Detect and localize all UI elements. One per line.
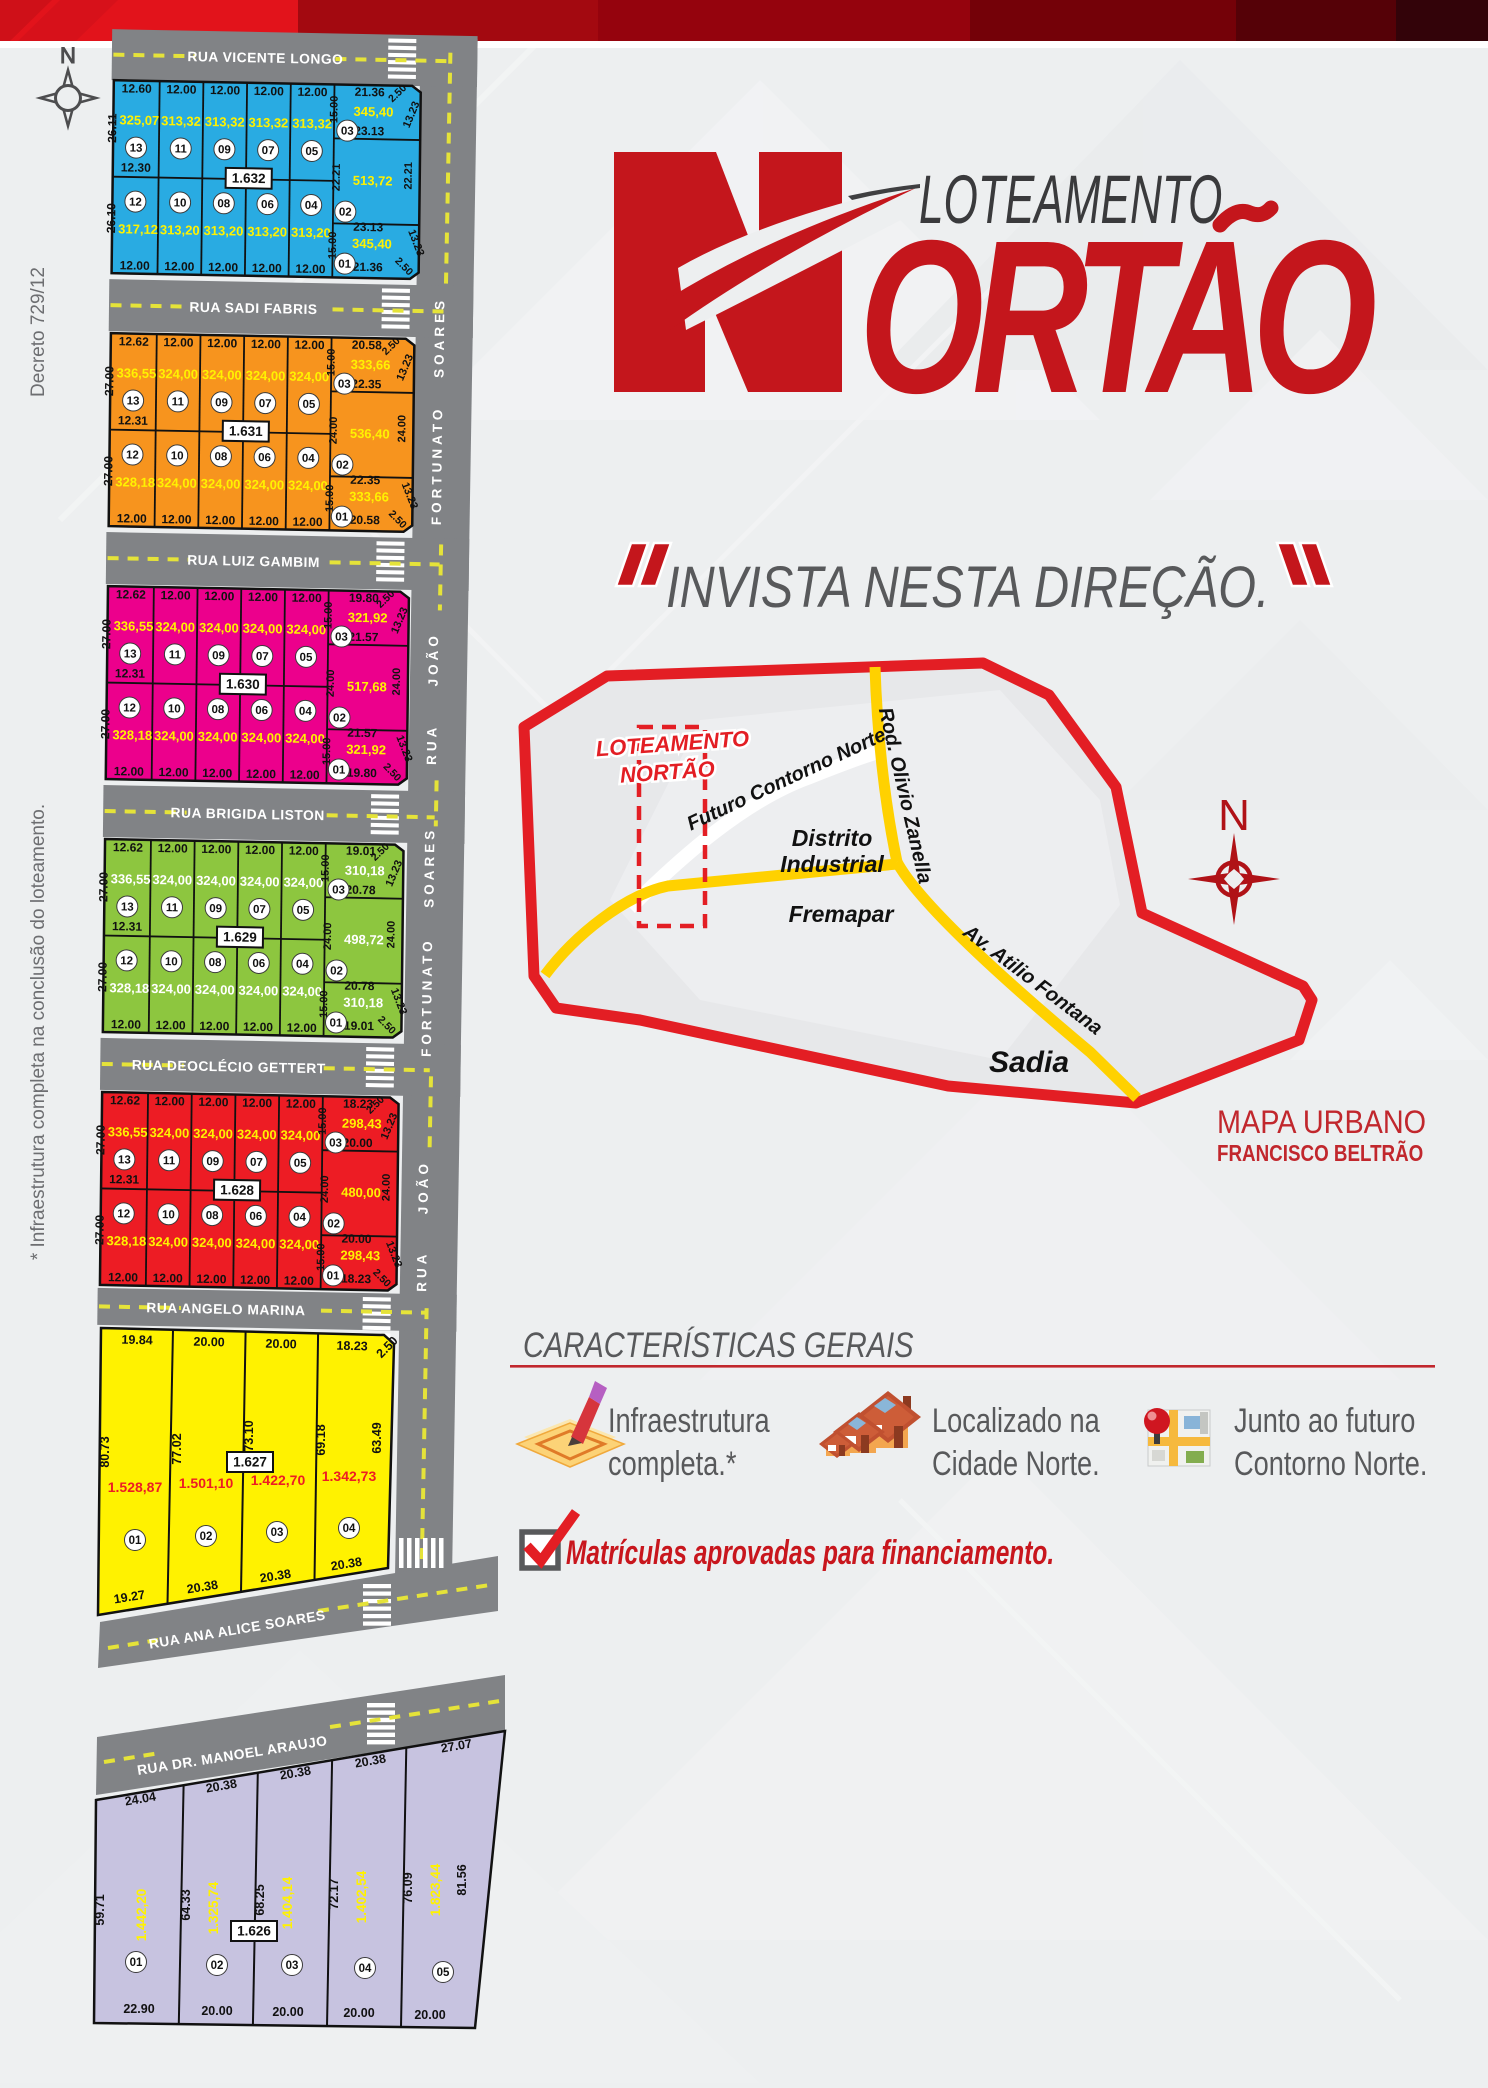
svg-text:324,00: 324,00 bbox=[282, 983, 322, 999]
svg-text:24.00: 24.00 bbox=[391, 668, 403, 696]
svg-text:12.00: 12.00 bbox=[158, 841, 189, 856]
svg-text:324,00: 324,00 bbox=[283, 874, 323, 890]
svg-text:12.00: 12.00 bbox=[166, 82, 197, 97]
svg-text:12.31: 12.31 bbox=[109, 1172, 140, 1187]
svg-text:1.402,54: 1.402,54 bbox=[354, 1870, 369, 1923]
svg-text:20.58: 20.58 bbox=[352, 338, 383, 353]
svg-text:298,43: 298,43 bbox=[340, 1248, 380, 1264]
svg-text:01: 01 bbox=[129, 1535, 142, 1547]
svg-text:12.00: 12.00 bbox=[196, 1272, 227, 1287]
svg-text:02: 02 bbox=[339, 207, 352, 219]
svg-text:02: 02 bbox=[330, 965, 343, 977]
svg-text:24.00: 24.00 bbox=[328, 417, 340, 445]
svg-text:12.60: 12.60 bbox=[122, 81, 153, 96]
svg-text:15.00: 15.00 bbox=[318, 990, 330, 1018]
svg-text:02: 02 bbox=[211, 1960, 224, 1972]
svg-text:324,00: 324,00 bbox=[286, 622, 326, 638]
svg-text:324,00: 324,00 bbox=[289, 369, 329, 385]
svg-text:12.62: 12.62 bbox=[110, 1093, 141, 1108]
svg-text:RUA LUIZ GAMBIM: RUA LUIZ GAMBIM bbox=[187, 553, 320, 571]
svg-text:03: 03 bbox=[338, 378, 351, 390]
svg-text:07: 07 bbox=[250, 1157, 263, 1169]
svg-text:336,55: 336,55 bbox=[114, 618, 154, 634]
svg-text:10: 10 bbox=[165, 956, 178, 968]
svg-text:12.00: 12.00 bbox=[111, 1017, 142, 1032]
svg-text:324,00: 324,00 bbox=[279, 1236, 319, 1252]
svg-text:09: 09 bbox=[209, 903, 222, 915]
svg-text:07: 07 bbox=[253, 904, 266, 916]
svg-text:324,00: 324,00 bbox=[236, 1236, 276, 1252]
svg-text:1.629: 1.629 bbox=[223, 929, 257, 945]
svg-text:03: 03 bbox=[271, 1527, 284, 1539]
svg-text:19.80: 19.80 bbox=[347, 766, 378, 781]
svg-text:20.00: 20.00 bbox=[193, 1335, 225, 1350]
svg-text:328,18: 328,18 bbox=[109, 980, 149, 996]
svg-text:12.00: 12.00 bbox=[160, 588, 191, 603]
svg-text:313,32: 313,32 bbox=[248, 115, 288, 131]
svg-text:01: 01 bbox=[330, 1017, 344, 1029]
svg-text:12.00: 12.00 bbox=[289, 844, 320, 859]
svg-text:completa.*: completa.* bbox=[608, 1444, 736, 1483]
svg-text:13: 13 bbox=[124, 648, 137, 660]
svg-text:20.00: 20.00 bbox=[201, 2004, 232, 2018]
svg-text:12: 12 bbox=[126, 449, 139, 461]
svg-text:324,00: 324,00 bbox=[151, 981, 191, 997]
svg-text:20.00: 20.00 bbox=[272, 2005, 303, 2019]
svg-text:324,00: 324,00 bbox=[201, 476, 241, 492]
svg-text:77.02: 77.02 bbox=[170, 1433, 184, 1464]
svg-text:324,00: 324,00 bbox=[152, 872, 192, 888]
svg-text:15.00: 15.00 bbox=[323, 601, 335, 629]
svg-text:03: 03 bbox=[335, 631, 348, 643]
svg-text:20.78: 20.78 bbox=[344, 979, 375, 994]
svg-text:21.36: 21.36 bbox=[355, 85, 386, 100]
svg-text:1.823,44: 1.823,44 bbox=[428, 1863, 443, 1916]
svg-text:73.10: 73.10 bbox=[242, 1420, 256, 1451]
svg-text:498,72: 498,72 bbox=[344, 932, 384, 948]
svg-text:310,18: 310,18 bbox=[343, 995, 383, 1011]
svg-text:1.626: 1.626 bbox=[237, 1924, 271, 1939]
svg-text:1.404,14: 1.404,14 bbox=[280, 1876, 295, 1929]
svg-text:13: 13 bbox=[118, 1154, 131, 1166]
svg-text:11: 11 bbox=[175, 143, 188, 155]
svg-text:03: 03 bbox=[329, 1137, 342, 1149]
svg-text:12.00: 12.00 bbox=[242, 1096, 273, 1111]
svg-text:310,18: 310,18 bbox=[345, 863, 385, 879]
svg-text:08: 08 bbox=[209, 957, 223, 969]
svg-text:328,18: 328,18 bbox=[106, 1233, 146, 1249]
svg-text:324,00: 324,00 bbox=[196, 873, 236, 889]
svg-text:15.00: 15.00 bbox=[315, 1243, 327, 1271]
svg-text:12.00: 12.00 bbox=[199, 1019, 230, 1034]
svg-text:12.00: 12.00 bbox=[208, 260, 239, 275]
svg-text:20.78: 20.78 bbox=[345, 883, 376, 898]
svg-text:12.00: 12.00 bbox=[114, 764, 145, 779]
svg-text:1.442,20: 1.442,20 bbox=[134, 1889, 149, 1942]
svg-text:Sadia: Sadia bbox=[989, 1046, 1069, 1079]
svg-text:12.00: 12.00 bbox=[295, 262, 326, 277]
svg-text:RUA BRIGIDA LISTON: RUA BRIGIDA LISTON bbox=[171, 805, 325, 823]
svg-text:09: 09 bbox=[212, 650, 225, 662]
svg-text:27.00: 27.00 bbox=[101, 456, 115, 487]
svg-text:FORTUNATO: FORTUNATO bbox=[419, 937, 435, 1057]
svg-text:22.35: 22.35 bbox=[350, 473, 381, 488]
svg-text:298,43: 298,43 bbox=[342, 1116, 382, 1132]
svg-text:480,00: 480,00 bbox=[341, 1185, 381, 1201]
svg-text:05: 05 bbox=[300, 652, 314, 664]
svg-text:313,32: 313,32 bbox=[205, 114, 245, 130]
svg-text:12.00: 12.00 bbox=[117, 511, 148, 526]
svg-text:05: 05 bbox=[305, 146, 319, 158]
svg-text:12.00: 12.00 bbox=[198, 1095, 229, 1110]
svg-text:20.00: 20.00 bbox=[414, 2008, 445, 2022]
svg-text:05: 05 bbox=[437, 1967, 450, 1979]
svg-text:05: 05 bbox=[294, 1158, 308, 1170]
svg-text:12: 12 bbox=[120, 955, 133, 967]
svg-text:324,00: 324,00 bbox=[199, 620, 239, 636]
svg-text:12.00: 12.00 bbox=[164, 259, 195, 274]
svg-text:63.49: 63.49 bbox=[370, 1422, 384, 1453]
svg-text:15.00: 15.00 bbox=[324, 484, 336, 512]
svg-text:06: 06 bbox=[258, 452, 271, 464]
svg-text:27.00: 27.00 bbox=[98, 709, 112, 740]
svg-text:07: 07 bbox=[262, 145, 275, 157]
svg-text:21.57: 21.57 bbox=[348, 630, 379, 645]
svg-text:22.21: 22.21 bbox=[403, 162, 415, 190]
svg-text:27.00: 27.00 bbox=[92, 1214, 106, 1245]
svg-text:536,40: 536,40 bbox=[350, 426, 390, 442]
svg-text:24.00: 24.00 bbox=[322, 922, 334, 950]
svg-text:13: 13 bbox=[121, 901, 134, 913]
svg-text:1.325,74: 1.325,74 bbox=[206, 1881, 221, 1934]
svg-text:324,00: 324,00 bbox=[192, 1235, 232, 1251]
svg-text:27.00: 27.00 bbox=[95, 961, 109, 992]
svg-text:324,00: 324,00 bbox=[285, 730, 325, 746]
svg-text:12.31: 12.31 bbox=[112, 919, 143, 934]
svg-text:1.627: 1.627 bbox=[233, 1455, 267, 1470]
svg-text:19.84: 19.84 bbox=[121, 1333, 153, 1348]
svg-text:11: 11 bbox=[172, 396, 185, 408]
svg-text:1.631: 1.631 bbox=[229, 423, 263, 439]
svg-text:19.01: 19.01 bbox=[344, 1019, 375, 1034]
svg-text:59.71: 59.71 bbox=[93, 1894, 107, 1925]
svg-text:02: 02 bbox=[333, 712, 346, 724]
svg-text:12.00: 12.00 bbox=[108, 1270, 139, 1285]
svg-text:18.23: 18.23 bbox=[336, 1339, 368, 1354]
svg-text:04: 04 bbox=[293, 1212, 307, 1224]
svg-text:324,00: 324,00 bbox=[198, 729, 238, 745]
svg-text:01: 01 bbox=[338, 258, 352, 270]
svg-text:ORTAO: ORTAO bbox=[859, 195, 1375, 439]
svg-text:12.00: 12.00 bbox=[292, 515, 323, 530]
svg-text:12.00: 12.00 bbox=[246, 767, 277, 782]
svg-text:INVISTA NESTA DIREÇÃO.: INVISTA NESTA DIREÇÃO. bbox=[666, 556, 1270, 620]
svg-text:12.00: 12.00 bbox=[207, 336, 238, 351]
svg-text:22.21: 22.21 bbox=[331, 164, 343, 192]
svg-text:1.422,70: 1.422,70 bbox=[251, 1472, 306, 1488]
svg-text:324,00: 324,00 bbox=[243, 621, 283, 637]
svg-text:12.00: 12.00 bbox=[202, 766, 233, 781]
svg-text:324,00: 324,00 bbox=[246, 368, 286, 384]
svg-text:JOÃO: JOÃO bbox=[426, 632, 442, 687]
svg-text:11: 11 bbox=[166, 902, 179, 914]
svg-text:02: 02 bbox=[336, 459, 349, 471]
svg-text:12.00: 12.00 bbox=[286, 1096, 317, 1111]
svg-text:23.13: 23.13 bbox=[354, 124, 385, 139]
svg-text:07: 07 bbox=[259, 398, 272, 410]
svg-text:324,00: 324,00 bbox=[281, 1127, 321, 1143]
svg-text:13: 13 bbox=[130, 142, 143, 154]
svg-text:12.00: 12.00 bbox=[245, 843, 276, 858]
svg-text:324,00: 324,00 bbox=[148, 1234, 188, 1250]
svg-text:20.00: 20.00 bbox=[343, 2006, 374, 2020]
svg-text:324,00: 324,00 bbox=[288, 478, 328, 494]
svg-text:24.00: 24.00 bbox=[385, 921, 397, 949]
svg-text:324,00: 324,00 bbox=[195, 982, 235, 998]
svg-text:Cidade Norte.: Cidade Norte. bbox=[932, 1444, 1100, 1483]
svg-text:SOARES: SOARES bbox=[432, 297, 448, 378]
svg-text:MAPA URBANO: MAPA URBANO bbox=[1217, 1105, 1426, 1141]
svg-text:12.00: 12.00 bbox=[204, 589, 235, 604]
svg-text:06: 06 bbox=[249, 1211, 262, 1223]
svg-text:321,92: 321,92 bbox=[346, 742, 386, 758]
svg-text:12.00: 12.00 bbox=[120, 258, 151, 273]
svg-text:09: 09 bbox=[218, 144, 231, 156]
svg-text:12.31: 12.31 bbox=[115, 666, 146, 681]
svg-text:336,55: 336,55 bbox=[111, 871, 151, 887]
svg-text:04: 04 bbox=[296, 959, 310, 971]
svg-text:08: 08 bbox=[211, 704, 225, 716]
svg-text:Infraestrutura: Infraestrutura bbox=[608, 1401, 770, 1440]
svg-text:23.13: 23.13 bbox=[353, 220, 384, 235]
svg-text:20.58: 20.58 bbox=[350, 513, 381, 528]
svg-text:76.09: 76.09 bbox=[401, 1872, 415, 1903]
svg-text:324,00: 324,00 bbox=[193, 1126, 233, 1142]
svg-text:01: 01 bbox=[130, 1957, 143, 1969]
svg-text:04: 04 bbox=[302, 453, 316, 465]
svg-text:328,18: 328,18 bbox=[112, 727, 152, 743]
svg-text:06: 06 bbox=[252, 958, 265, 970]
svg-text:324,00: 324,00 bbox=[240, 874, 280, 890]
svg-text:RUA VICENTE LONGO: RUA VICENTE LONGO bbox=[187, 49, 343, 67]
svg-text:27.00: 27.00 bbox=[99, 619, 113, 650]
svg-text:336,55: 336,55 bbox=[108, 1124, 148, 1140]
svg-text:Distrito: Distrito bbox=[792, 825, 873, 851]
svg-text:04: 04 bbox=[305, 200, 319, 212]
svg-text:02: 02 bbox=[200, 1531, 213, 1543]
svg-text:05: 05 bbox=[297, 905, 311, 917]
svg-text:324,00: 324,00 bbox=[157, 475, 197, 491]
svg-text:Localizado na: Localizado na bbox=[932, 1401, 1101, 1440]
svg-text:Fremapar: Fremapar bbox=[789, 901, 895, 927]
svg-text:336,55: 336,55 bbox=[116, 365, 156, 381]
svg-text:313,20: 313,20 bbox=[291, 225, 331, 241]
svg-text:N: N bbox=[60, 43, 76, 68]
svg-text:08: 08 bbox=[214, 451, 228, 463]
svg-text:12.00: 12.00 bbox=[254, 84, 285, 99]
svg-text:517,68: 517,68 bbox=[347, 679, 387, 695]
svg-text:80.73: 80.73 bbox=[98, 1436, 112, 1467]
svg-text:11: 11 bbox=[163, 1155, 176, 1167]
svg-text:324,00: 324,00 bbox=[149, 1125, 189, 1141]
svg-text:10: 10 bbox=[174, 197, 187, 209]
svg-text:11: 11 bbox=[169, 649, 182, 661]
svg-text:13: 13 bbox=[127, 395, 140, 407]
svg-text:1.632: 1.632 bbox=[232, 170, 266, 186]
svg-text:1.628: 1.628 bbox=[220, 1182, 254, 1198]
svg-text:313,32: 313,32 bbox=[161, 113, 201, 129]
svg-text:313,20: 313,20 bbox=[247, 224, 287, 240]
svg-text:04: 04 bbox=[359, 1963, 372, 1975]
svg-text:1.528,87: 1.528,87 bbox=[108, 1479, 163, 1495]
svg-text:01: 01 bbox=[332, 764, 346, 776]
svg-text:12.00: 12.00 bbox=[205, 513, 236, 528]
svg-text:324,00: 324,00 bbox=[238, 983, 278, 999]
svg-text:12.00: 12.00 bbox=[251, 337, 282, 352]
svg-text:12.00: 12.00 bbox=[287, 1021, 318, 1036]
svg-text:12.62: 12.62 bbox=[113, 840, 144, 855]
svg-text:15.00: 15.00 bbox=[321, 737, 333, 765]
svg-text:12.62: 12.62 bbox=[116, 587, 147, 602]
svg-text:24.00: 24.00 bbox=[325, 669, 337, 697]
svg-text:FRANCISCO BELTRÃO: FRANCISCO BELTRÃO bbox=[1217, 1139, 1423, 1167]
svg-text:21.36: 21.36 bbox=[353, 260, 384, 275]
svg-text:24.00: 24.00 bbox=[380, 1174, 392, 1202]
svg-text:RUA ANGELO MARINA: RUA ANGELO MARINA bbox=[146, 1300, 305, 1318]
svg-text:513,72: 513,72 bbox=[353, 173, 393, 189]
svg-text:12.00: 12.00 bbox=[240, 1273, 271, 1288]
svg-text:03: 03 bbox=[286, 1960, 299, 1972]
svg-text:27.00: 27.00 bbox=[96, 872, 110, 903]
svg-text:24.00: 24.00 bbox=[396, 415, 408, 443]
svg-text:20.00: 20.00 bbox=[265, 1337, 297, 1352]
svg-text:18.23: 18.23 bbox=[341, 1272, 372, 1287]
svg-text:12.00: 12.00 bbox=[243, 1020, 274, 1035]
svg-text:345,40: 345,40 bbox=[352, 236, 392, 252]
svg-text:04: 04 bbox=[343, 1523, 356, 1535]
svg-text:03: 03 bbox=[332, 884, 345, 896]
svg-text:06: 06 bbox=[261, 199, 274, 211]
svg-text:RUA SADI FABRIS: RUA SADI FABRIS bbox=[189, 300, 317, 317]
svg-text:12.30: 12.30 bbox=[121, 160, 152, 175]
svg-text:12.00: 12.00 bbox=[161, 512, 192, 527]
svg-text:12.00: 12.00 bbox=[248, 590, 279, 605]
svg-text:69.18: 69.18 bbox=[314, 1424, 328, 1455]
svg-text:CARACTERÍSTICAS GERAIS: CARACTERÍSTICAS GERAIS bbox=[523, 1325, 914, 1364]
svg-text:325,07: 325,07 bbox=[119, 112, 159, 128]
svg-text:72.17: 72.17 bbox=[327, 1878, 341, 1909]
svg-text:12.00: 12.00 bbox=[252, 261, 283, 276]
svg-text:324,00: 324,00 bbox=[155, 619, 195, 635]
svg-text:324,00: 324,00 bbox=[158, 366, 198, 382]
svg-text:15.00: 15.00 bbox=[325, 348, 337, 376]
svg-text:20.00: 20.00 bbox=[343, 1136, 374, 1151]
svg-text:Contorno Norte.: Contorno Norte. bbox=[1234, 1444, 1427, 1483]
svg-text:09: 09 bbox=[215, 397, 228, 409]
svg-text:12.00: 12.00 bbox=[292, 591, 323, 606]
svg-text:12.00: 12.00 bbox=[290, 768, 321, 783]
svg-text:81.56: 81.56 bbox=[455, 1864, 469, 1895]
svg-text:26.11: 26.11 bbox=[105, 113, 119, 143]
svg-text:27.00: 27.00 bbox=[93, 1124, 107, 1155]
svg-text:10: 10 bbox=[171, 450, 184, 462]
svg-text:12.00: 12.00 bbox=[158, 765, 189, 780]
svg-text:12: 12 bbox=[129, 196, 142, 208]
svg-text:324,00: 324,00 bbox=[244, 477, 284, 493]
svg-text:12.00: 12.00 bbox=[249, 514, 280, 529]
svg-text:21.57: 21.57 bbox=[347, 726, 378, 741]
svg-text:Decreto 729/12: Decreto 729/12 bbox=[28, 267, 49, 397]
svg-text:1.501,10: 1.501,10 bbox=[179, 1475, 234, 1491]
svg-text:12.00: 12.00 bbox=[210, 83, 241, 98]
svg-text:328,18: 328,18 bbox=[115, 474, 155, 490]
svg-text:22.35: 22.35 bbox=[351, 377, 382, 392]
svg-text:JOÃO: JOÃO bbox=[416, 1160, 432, 1215]
svg-text:12.00: 12.00 bbox=[297, 85, 328, 100]
svg-text:03: 03 bbox=[341, 126, 354, 138]
svg-text:08: 08 bbox=[217, 198, 231, 210]
svg-text:24.00: 24.00 bbox=[319, 1175, 331, 1203]
svg-text:26.10: 26.10 bbox=[104, 203, 118, 234]
svg-text:324,00: 324,00 bbox=[202, 367, 242, 383]
svg-text:01: 01 bbox=[335, 511, 349, 523]
svg-text:RUA: RUA bbox=[424, 724, 439, 766]
svg-text:08: 08 bbox=[206, 1210, 220, 1222]
svg-text:12.31: 12.31 bbox=[118, 413, 149, 428]
svg-text:22.90: 22.90 bbox=[123, 2002, 154, 2016]
svg-text:15.00: 15.00 bbox=[328, 96, 340, 124]
svg-text:12.00: 12.00 bbox=[156, 1018, 187, 1033]
svg-text:05: 05 bbox=[302, 399, 316, 411]
svg-text:12.00: 12.00 bbox=[153, 1271, 184, 1286]
svg-text:12.00: 12.00 bbox=[201, 842, 232, 857]
svg-text:333,66: 333,66 bbox=[351, 357, 391, 373]
svg-text:Matrículas aprovadas para fina: Matrículas aprovadas para financiamento. bbox=[566, 1534, 1054, 1572]
svg-text:12: 12 bbox=[123, 702, 136, 714]
svg-text:12.00: 12.00 bbox=[155, 1094, 186, 1109]
svg-text:68.25: 68.25 bbox=[253, 1884, 267, 1915]
svg-text:12.00: 12.00 bbox=[294, 338, 325, 353]
svg-text:333,66: 333,66 bbox=[349, 489, 389, 505]
svg-text:09: 09 bbox=[206, 1156, 219, 1168]
svg-text:04: 04 bbox=[299, 706, 313, 718]
svg-text:1.342,73: 1.342,73 bbox=[322, 1468, 377, 1484]
svg-text:06: 06 bbox=[255, 705, 268, 717]
svg-text:321,92: 321,92 bbox=[348, 610, 388, 626]
svg-text:12: 12 bbox=[117, 1208, 130, 1220]
svg-text:RUA: RUA bbox=[414, 1250, 429, 1292]
svg-text:FORTUNATO: FORTUNATO bbox=[429, 406, 445, 526]
svg-text:12.62: 12.62 bbox=[119, 334, 150, 349]
svg-text:64.33: 64.33 bbox=[179, 1889, 193, 1920]
svg-text:07: 07 bbox=[256, 651, 269, 663]
svg-text:324,00: 324,00 bbox=[154, 728, 194, 744]
svg-text:15.00: 15.00 bbox=[327, 232, 339, 260]
svg-text:324,00: 324,00 bbox=[237, 1127, 277, 1143]
svg-text:12.00: 12.00 bbox=[284, 1273, 315, 1288]
svg-text:02: 02 bbox=[327, 1218, 340, 1230]
svg-text:01: 01 bbox=[327, 1270, 341, 1282]
svg-text:Industrial: Industrial bbox=[780, 851, 884, 877]
svg-text:SOARES: SOARES bbox=[422, 827, 438, 908]
svg-text:313,32: 313,32 bbox=[292, 116, 332, 132]
svg-text:27.00: 27.00 bbox=[102, 366, 116, 397]
svg-text:12.00: 12.00 bbox=[163, 335, 194, 350]
svg-text:N: N bbox=[1218, 791, 1250, 840]
svg-text:15.00: 15.00 bbox=[317, 1107, 329, 1135]
svg-text:10: 10 bbox=[168, 703, 181, 715]
svg-text:* Infraestrutura completa na c: * Infraestrutura completa na conclusão d… bbox=[28, 804, 49, 1260]
